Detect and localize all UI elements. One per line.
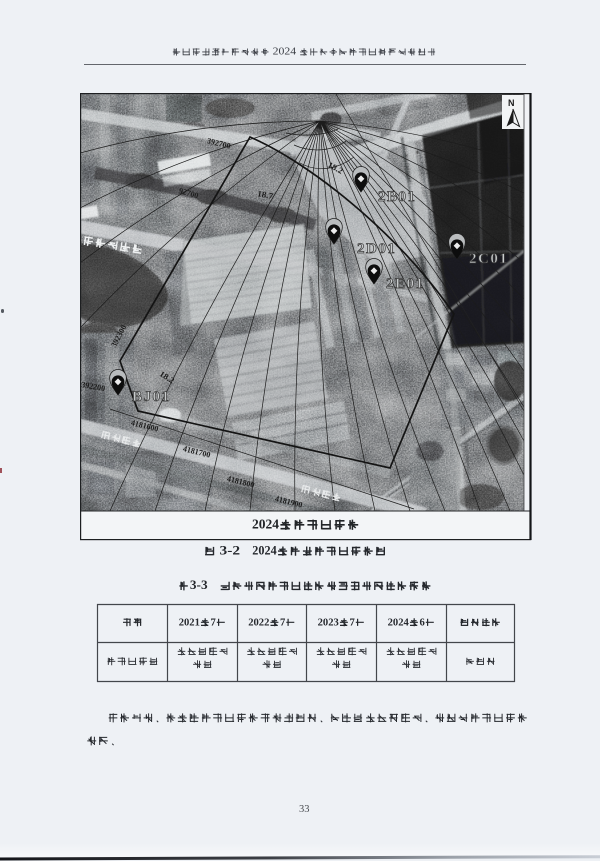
svg-text:2024: 2024 (270, 47, 299, 58)
svg-text:7: 7 (280, 616, 286, 628)
svg-text:2B01: 2B01 (378, 189, 417, 205)
svg-text:BJ01: BJ01 (132, 389, 171, 405)
svg-text:2D01: 2D01 (357, 241, 396, 257)
svg-text:3-3: 3-3 (190, 578, 208, 592)
svg-text:2C01: 2C01 (469, 251, 508, 267)
svg-text:2024: 2024 (252, 518, 279, 533)
svg-text:6: 6 (420, 616, 426, 628)
svg-text:3-2: 3-2 (216, 544, 240, 558)
svg-text:33: 33 (299, 804, 310, 815)
svg-text:2024: 2024 (388, 616, 410, 628)
svg-text:2022: 2022 (248, 616, 270, 628)
svg-text:2023: 2023 (318, 616, 340, 628)
svg-text:2E01: 2E01 (386, 276, 425, 292)
svg-text:2021: 2021 (179, 616, 200, 628)
svg-text:7: 7 (211, 616, 217, 628)
svg-text:2024: 2024 (252, 544, 277, 558)
svg-text:N: N (508, 98, 515, 108)
svg-text:7: 7 (350, 616, 356, 628)
